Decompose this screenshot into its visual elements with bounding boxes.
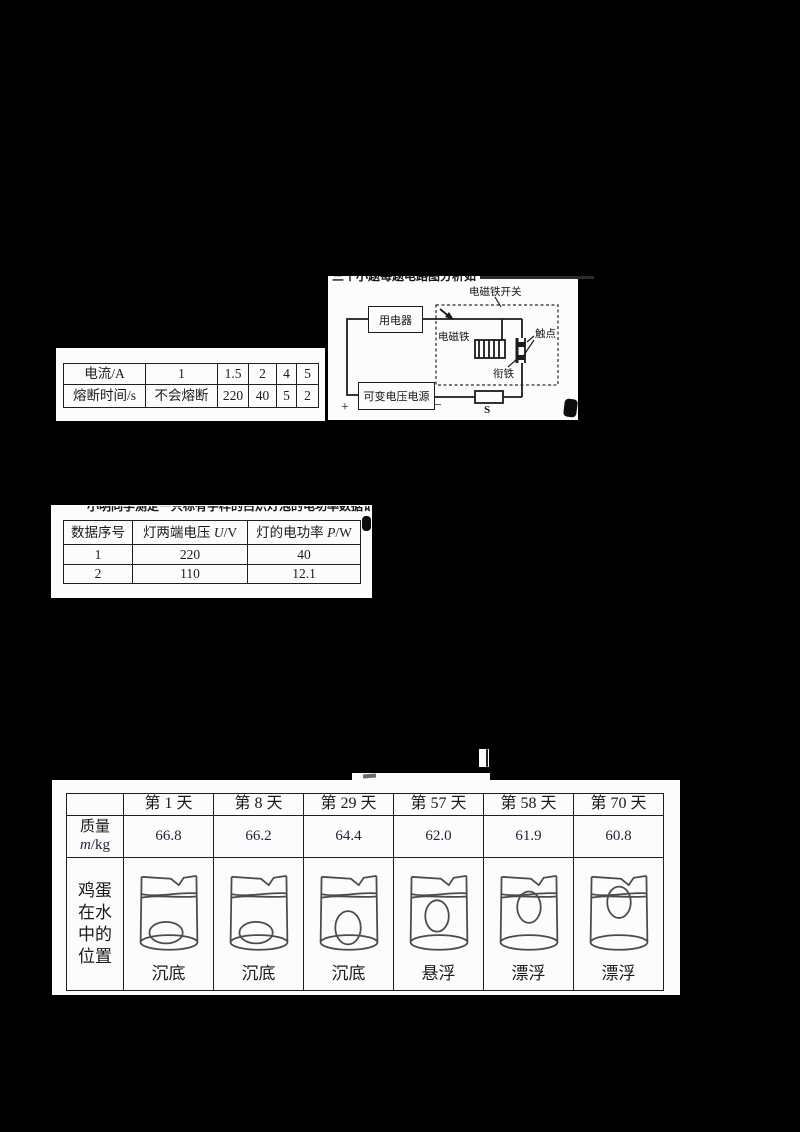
table-row: 电流/A 1 1.5 2 4 5 (64, 364, 319, 385)
beaker-drawing (492, 868, 566, 962)
beaker-cell: 漂浮 (574, 858, 664, 991)
minus-terminal-label: − (434, 398, 442, 414)
header-text: 灯的电功率 (256, 525, 324, 540)
cell: 5 (277, 385, 297, 408)
document-page: 三个小题每题电路图分析如下所示 (0, 0, 800, 1132)
switch-title-label: 电磁铁开关 (469, 284, 522, 299)
fuse-table: 电流/A 1 1.5 2 4 5 熔断时间/s 不会熔断 220 40 5 2 (63, 363, 319, 408)
position-label: 漂浮 (602, 964, 636, 984)
beaker-cell: 沉底 (124, 858, 214, 991)
cell: 2 (64, 565, 133, 584)
beaker-drawing (582, 868, 656, 962)
position-label: 悬浮 (422, 964, 456, 984)
cell: 1 (64, 545, 133, 565)
mass-value: 66.2 (214, 816, 304, 858)
mass-label: 质量 (67, 819, 123, 836)
cell: 不会熔断 (146, 385, 218, 408)
ink-blob-fragment (563, 398, 578, 417)
table-row: 鸡蛋 在水 中的 位置 沉底 沉底 沉底 悬浮 漂浮 (67, 858, 664, 991)
cell: 灯的电功率 P/W (248, 521, 361, 545)
cell: 220 (133, 545, 248, 565)
armature-label: 衔铁 (493, 366, 514, 381)
table-row: 熔断时间/s 不会熔断 220 40 5 2 (64, 385, 319, 408)
day-header: 第 1 天 (124, 794, 214, 816)
label-line: 鸡蛋 (67, 880, 123, 902)
cutoff-text-fragment: 小明同学测定一只标有字样的白炽灯泡的电功率数据记 (87, 506, 370, 514)
unit: /V (224, 525, 238, 540)
lamp-table: 数据序号 灯两端电压 U/V 灯的电功率 P/W 1 220 40 2 110 … (63, 520, 361, 584)
cell-empty (67, 794, 124, 816)
cell: 1 (146, 364, 218, 385)
beaker-drawing (132, 868, 206, 962)
circuit-diagram-patch: 三个小题每题电路图分析如下所示 (328, 276, 578, 420)
day-header: 第 70 天 (574, 794, 664, 816)
egg-observation-table: 第 1 天 第 8 天 第 29 天 第 57 天 第 58 天 第 70 天 … (66, 793, 664, 991)
table-row: 第 1 天 第 8 天 第 29 天 第 57 天 第 58 天 第 70 天 (67, 794, 664, 816)
cell: 40 (249, 385, 277, 408)
day-header: 第 57 天 (394, 794, 484, 816)
cell: 220 (218, 385, 249, 408)
day-header: 第 8 天 (214, 794, 304, 816)
mass-row-label: 质量 m/kg (67, 816, 124, 858)
symbol: m (80, 837, 91, 853)
label-line: 位置 (67, 946, 123, 968)
plus-terminal-label: + (341, 400, 349, 416)
symbol: U (214, 525, 224, 540)
table-row: 1 220 40 (64, 545, 361, 565)
table-row: 数据序号 灯两端电压 U/V 灯的电功率 P/W (64, 521, 361, 545)
position-label: 沉底 (332, 964, 366, 984)
beaker-drawing (312, 868, 386, 962)
power-supply-box: 可变电压电源 (358, 382, 435, 410)
cell: 12.1 (248, 565, 361, 584)
day-header: 第 29 天 (304, 794, 394, 816)
cell: 1.5 (218, 364, 249, 385)
table-row: 质量 m/kg 66.8 66.2 64.4 62.0 61.9 60.8 (67, 816, 664, 858)
electromagnet-label: 电磁铁 (438, 329, 470, 344)
cell: 2 (249, 364, 277, 385)
mass-value: 60.8 (574, 816, 664, 858)
cell: 2 (297, 385, 319, 408)
cell: 40 (248, 545, 361, 565)
beaker-cell: 沉底 (304, 858, 394, 991)
noise-dots: ········ (527, 384, 561, 388)
appliance-label: 用电器 (379, 312, 412, 328)
glyph-fragment (363, 774, 376, 779)
cell: 电流/A (64, 364, 146, 385)
power-supply-label: 可变电压电源 (364, 388, 430, 404)
switch-s-label: S (484, 404, 490, 416)
position-label: 沉底 (152, 964, 186, 984)
cell: 灯两端电压 U/V (133, 521, 248, 545)
unit: /W (335, 525, 352, 540)
unit: /kg (91, 837, 110, 853)
position-row-label: 鸡蛋 在水 中的 位置 (67, 858, 124, 991)
beaker-cell: 沉底 (214, 858, 304, 991)
mass-value: 61.9 (484, 816, 574, 858)
contact-label: 触点 (535, 326, 556, 341)
paper-fragment (479, 749, 489, 767)
mass-value: 62.0 (394, 816, 484, 858)
table-row: 2 110 12.1 (64, 565, 361, 584)
mass-value: 66.8 (124, 816, 214, 858)
cell: 110 (133, 565, 248, 584)
beaker-cell: 悬浮 (394, 858, 484, 991)
beaker-cell: 漂浮 (484, 858, 574, 991)
beaker-drawing (222, 868, 296, 962)
cell: 熔断时间/s (64, 385, 146, 408)
glyph-fragment (486, 749, 489, 767)
day-header: 第 58 天 (484, 794, 574, 816)
cell: 数据序号 (64, 521, 133, 545)
appliance-box: 用电器 (368, 306, 423, 333)
ink-blob-fragment (362, 516, 371, 531)
label-line: 在水 (67, 902, 123, 924)
position-label: 沉底 (242, 964, 276, 984)
header-text: 灯两端电压 (143, 525, 211, 540)
cell: 4 (277, 364, 297, 385)
label-line: 中的 (67, 924, 123, 946)
cell: 5 (297, 364, 319, 385)
beaker-drawing (402, 868, 476, 962)
position-label: 漂浮 (512, 964, 546, 984)
mass-value: 64.4 (304, 816, 394, 858)
